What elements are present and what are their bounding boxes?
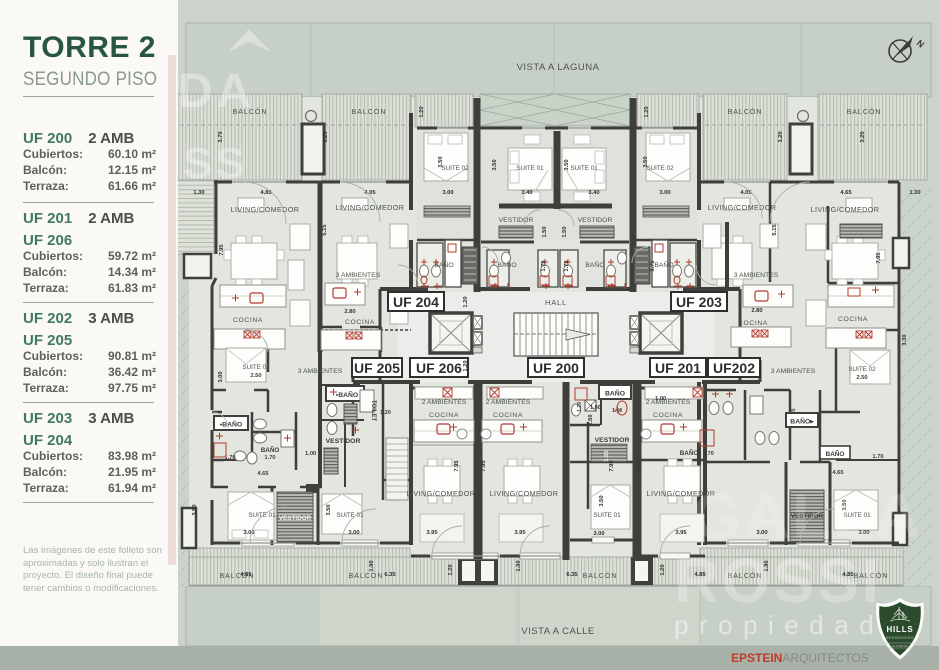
svg-text:UF 206: UF 206 — [416, 360, 462, 376]
svg-text:UF 204: UF 204 — [393, 294, 439, 310]
svg-text:LIVING/COMEDOR: LIVING/COMEDOR — [336, 203, 405, 212]
svg-text:SS: SS — [183, 139, 248, 188]
svg-text:3.50: 3.50 — [192, 504, 198, 515]
svg-text:1.90: 1.90 — [369, 560, 375, 571]
svg-text:1.20: 1.20 — [463, 360, 469, 371]
svg-text:ROSSI: ROSSI — [674, 547, 882, 616]
svg-text:3.00: 3.00 — [348, 530, 359, 536]
svg-text:BAÑO: BAÑO — [680, 448, 699, 457]
svg-text:1.20: 1.20 — [644, 106, 650, 117]
svg-text:COCINA: COCINA — [738, 320, 768, 327]
svg-text:VESTIDOR: VESTIDOR — [279, 515, 312, 522]
svg-text:SUITE 01: SUITE 01 — [593, 512, 621, 519]
svg-text:3.50: 3.50 — [326, 504, 332, 515]
svg-text:SUITE 02: SUITE 02 — [848, 366, 876, 373]
svg-text:VISTA A CALLE: VISTA A CALLE — [521, 626, 594, 637]
svg-text:1.75: 1.75 — [541, 260, 547, 272]
svg-text:BAÑO: BAÑO — [826, 449, 845, 458]
svg-text:COCINA: COCINA — [345, 319, 375, 326]
svg-text:VESTIDOR: VESTIDOR — [499, 217, 534, 224]
svg-text:3.50: 3.50 — [492, 159, 498, 170]
svg-text:COCINA: COCINA — [653, 412, 683, 419]
svg-text:EPSTEINARQUITECTOS: EPSTEINARQUITECTOS — [731, 651, 869, 665]
svg-text:SUITE 02: SUITE 02 — [646, 165, 674, 172]
svg-text:4.65: 4.65 — [840, 190, 852, 196]
svg-text:COCINA: COCINA — [838, 316, 868, 323]
svg-text:BALCÓN: BALCÓN — [352, 107, 387, 116]
svg-text:BALCÓN: BALCÓN — [583, 571, 618, 580]
svg-text:BALCÓN: BALCÓN — [728, 107, 763, 116]
svg-text:3 AMBIENTES: 3 AMBIENTES — [734, 272, 779, 279]
svg-text:1.90: 1.90 — [516, 560, 522, 571]
svg-text:3.50: 3.50 — [643, 156, 649, 167]
svg-text:BAÑO: BAÑO — [605, 389, 625, 398]
svg-text:1.30: 1.30 — [909, 190, 920, 196]
svg-text:LIVING/COMEDOR: LIVING/COMEDOR — [708, 203, 777, 212]
svg-text:BALCÓN: BALCÓN — [847, 107, 882, 116]
svg-text:1.50: 1.50 — [542, 226, 548, 237]
svg-text:3.95: 3.95 — [675, 530, 687, 536]
svg-text:1.20: 1.20 — [660, 564, 666, 575]
svg-text:BAÑO▸: BAÑO▸ — [790, 417, 814, 426]
svg-text:3.50: 3.50 — [438, 156, 444, 167]
svg-text:3 AMBIENTES: 3 AMBIENTES — [298, 368, 343, 375]
svg-text:3.40: 3.40 — [521, 190, 532, 196]
svg-text:3.20: 3.20 — [860, 131, 866, 142]
svg-text:6.35: 6.35 — [384, 572, 396, 578]
svg-text:3.50: 3.50 — [564, 159, 570, 170]
svg-text:EL CANTON: EL CANTON — [892, 644, 908, 648]
svg-text:3 AMBIENTES: 3 AMBIENTES — [771, 368, 816, 375]
svg-text:3.50: 3.50 — [599, 495, 605, 506]
svg-text:BAÑO: BAÑO — [585, 260, 604, 269]
svg-text:1.20: 1.20 — [448, 564, 454, 575]
svg-text:SUITE 01: SUITE 01 — [570, 165, 598, 172]
svg-text:1.70: 1.70 — [265, 455, 276, 461]
svg-text:1.20: 1.20 — [577, 402, 583, 412]
svg-text:UF 203: UF 203 — [676, 294, 722, 310]
svg-text:▪BAÑO: ▪BAÑO — [336, 390, 358, 399]
svg-text:UF 200: UF 200 — [533, 360, 579, 376]
svg-text:UF 201: UF 201 — [655, 360, 701, 376]
svg-text:4.65: 4.65 — [832, 470, 844, 476]
svg-text:HILLS: HILLS — [886, 625, 913, 634]
svg-text:VESTIDOR: VESTIDOR — [595, 437, 630, 444]
svg-text:2.80: 2.80 — [344, 309, 355, 315]
svg-text:4.05: 4.05 — [740, 190, 752, 196]
svg-text:3.00: 3.00 — [593, 531, 604, 537]
svg-text:3.20: 3.20 — [323, 131, 329, 142]
svg-text:3.95: 3.95 — [514, 530, 526, 536]
svg-text:SUITE 01: SUITE 01 — [516, 165, 544, 172]
svg-text:3.20: 3.20 — [778, 131, 784, 142]
svg-text:2 AMBIENTES: 2 AMBIENTES — [486, 399, 531, 406]
svg-text:1.70: 1.70 — [873, 454, 884, 460]
svg-text:HALL: HALL — [545, 298, 567, 307]
svg-text:VISTA A LAGUNA: VISTA A LAGUNA — [517, 62, 600, 73]
svg-text:2 AMBIENTES: 2 AMBIENTES — [422, 399, 467, 406]
svg-text:6.35: 6.35 — [566, 572, 578, 578]
svg-text:5.15: 5.15 — [772, 224, 778, 236]
svg-text:7.95: 7.95 — [219, 244, 225, 256]
svg-text:3.00: 3.00 — [243, 530, 254, 536]
svg-text:•BAÑO: •BAÑO — [220, 420, 242, 429]
svg-text:1.20: 1.20 — [463, 296, 469, 307]
svg-text:1.50: 1.50 — [588, 414, 594, 425]
svg-text:1.00: 1.00 — [305, 451, 316, 457]
svg-text:1.20: 1.20 — [419, 106, 425, 117]
svg-text:3.95: 3.95 — [426, 530, 438, 536]
svg-text:4.65: 4.65 — [257, 471, 269, 477]
svg-text:7.95: 7.95 — [454, 460, 460, 472]
svg-text:COCINA: COCINA — [233, 317, 263, 324]
svg-text:LIVING/COMEDOR: LIVING/COMEDOR — [407, 489, 476, 498]
svg-text:3.40: 3.40 — [588, 190, 599, 196]
svg-text:7.95: 7.95 — [481, 460, 487, 472]
svg-text:1.50: 1.50 — [604, 450, 610, 461]
svg-text:3.00: 3.00 — [659, 190, 670, 196]
svg-text:BAÑO: BAÑO — [497, 260, 516, 269]
svg-text:2.50: 2.50 — [250, 373, 261, 379]
svg-text:LIVING/COMEDOR: LIVING/COMEDOR — [490, 489, 559, 498]
svg-text:1.00: 1.00 — [655, 396, 666, 402]
svg-text:1.00: 1.00 — [590, 405, 601, 411]
svg-text:COCINA: COCINA — [493, 412, 523, 419]
svg-text:BAÑO: BAÑO — [654, 260, 673, 269]
svg-text:COCINA: COCINA — [429, 412, 459, 419]
svg-text:SUITE 02: SUITE 02 — [441, 165, 469, 172]
svg-text:1.50: 1.50 — [562, 226, 568, 237]
svg-text:4.05: 4.05 — [364, 190, 376, 196]
svg-text:1.20: 1.20 — [380, 410, 391, 416]
svg-text:3.00: 3.00 — [218, 371, 224, 382]
svg-text:UF 205: UF 205 — [354, 360, 400, 376]
svg-text:BALCÓN: BALCÓN — [349, 571, 384, 580]
svg-text:3.00: 3.00 — [442, 190, 453, 196]
svg-text:VESTIDOR: VESTIDOR — [578, 217, 613, 224]
svg-text:VESTIDOR: VESTIDOR — [326, 438, 361, 445]
svg-text:BAÑO: BAÑO — [261, 445, 280, 454]
svg-text:3 AMBIENTES: 3 AMBIENTES — [336, 272, 381, 279]
svg-text:7.95: 7.95 — [609, 460, 615, 472]
svg-text:DA: DA — [178, 65, 255, 118]
svg-text:4.85: 4.85 — [240, 572, 252, 578]
svg-text:1.30: 1.30 — [193, 190, 204, 196]
svg-text:LIVING/COMEDOR: LIVING/COMEDOR — [811, 205, 880, 214]
svg-text:LIVING/COMEDOR: LIVING/COMEDOR — [231, 205, 300, 214]
svg-text:BAÑO: BAÑO — [434, 260, 453, 269]
svg-text:5.15: 5.15 — [322, 224, 328, 236]
svg-text:GALLA: GALLA — [692, 480, 922, 552]
svg-text:2 AMBIENTES: 2 AMBIENTES — [646, 399, 691, 406]
svg-text:2.50: 2.50 — [856, 375, 867, 381]
svg-text:7.95: 7.95 — [876, 252, 882, 264]
svg-text:3.30: 3.30 — [902, 334, 908, 345]
svg-text:propiedade: propiedade — [674, 610, 909, 640]
svg-text:1.75: 1.75 — [564, 260, 570, 272]
svg-text:RESIDENCES: RESIDENCES — [886, 636, 914, 640]
svg-text:SUITE 02: SUITE 02 — [242, 364, 270, 371]
svg-text:2.80: 2.80 — [751, 308, 762, 314]
svg-text:1.70: 1.70 — [703, 451, 714, 457]
svg-text:UF202: UF202 — [713, 360, 755, 376]
svg-text:TOILET: TOILET — [370, 400, 376, 422]
svg-text:7.95: 7.95 — [637, 460, 643, 472]
